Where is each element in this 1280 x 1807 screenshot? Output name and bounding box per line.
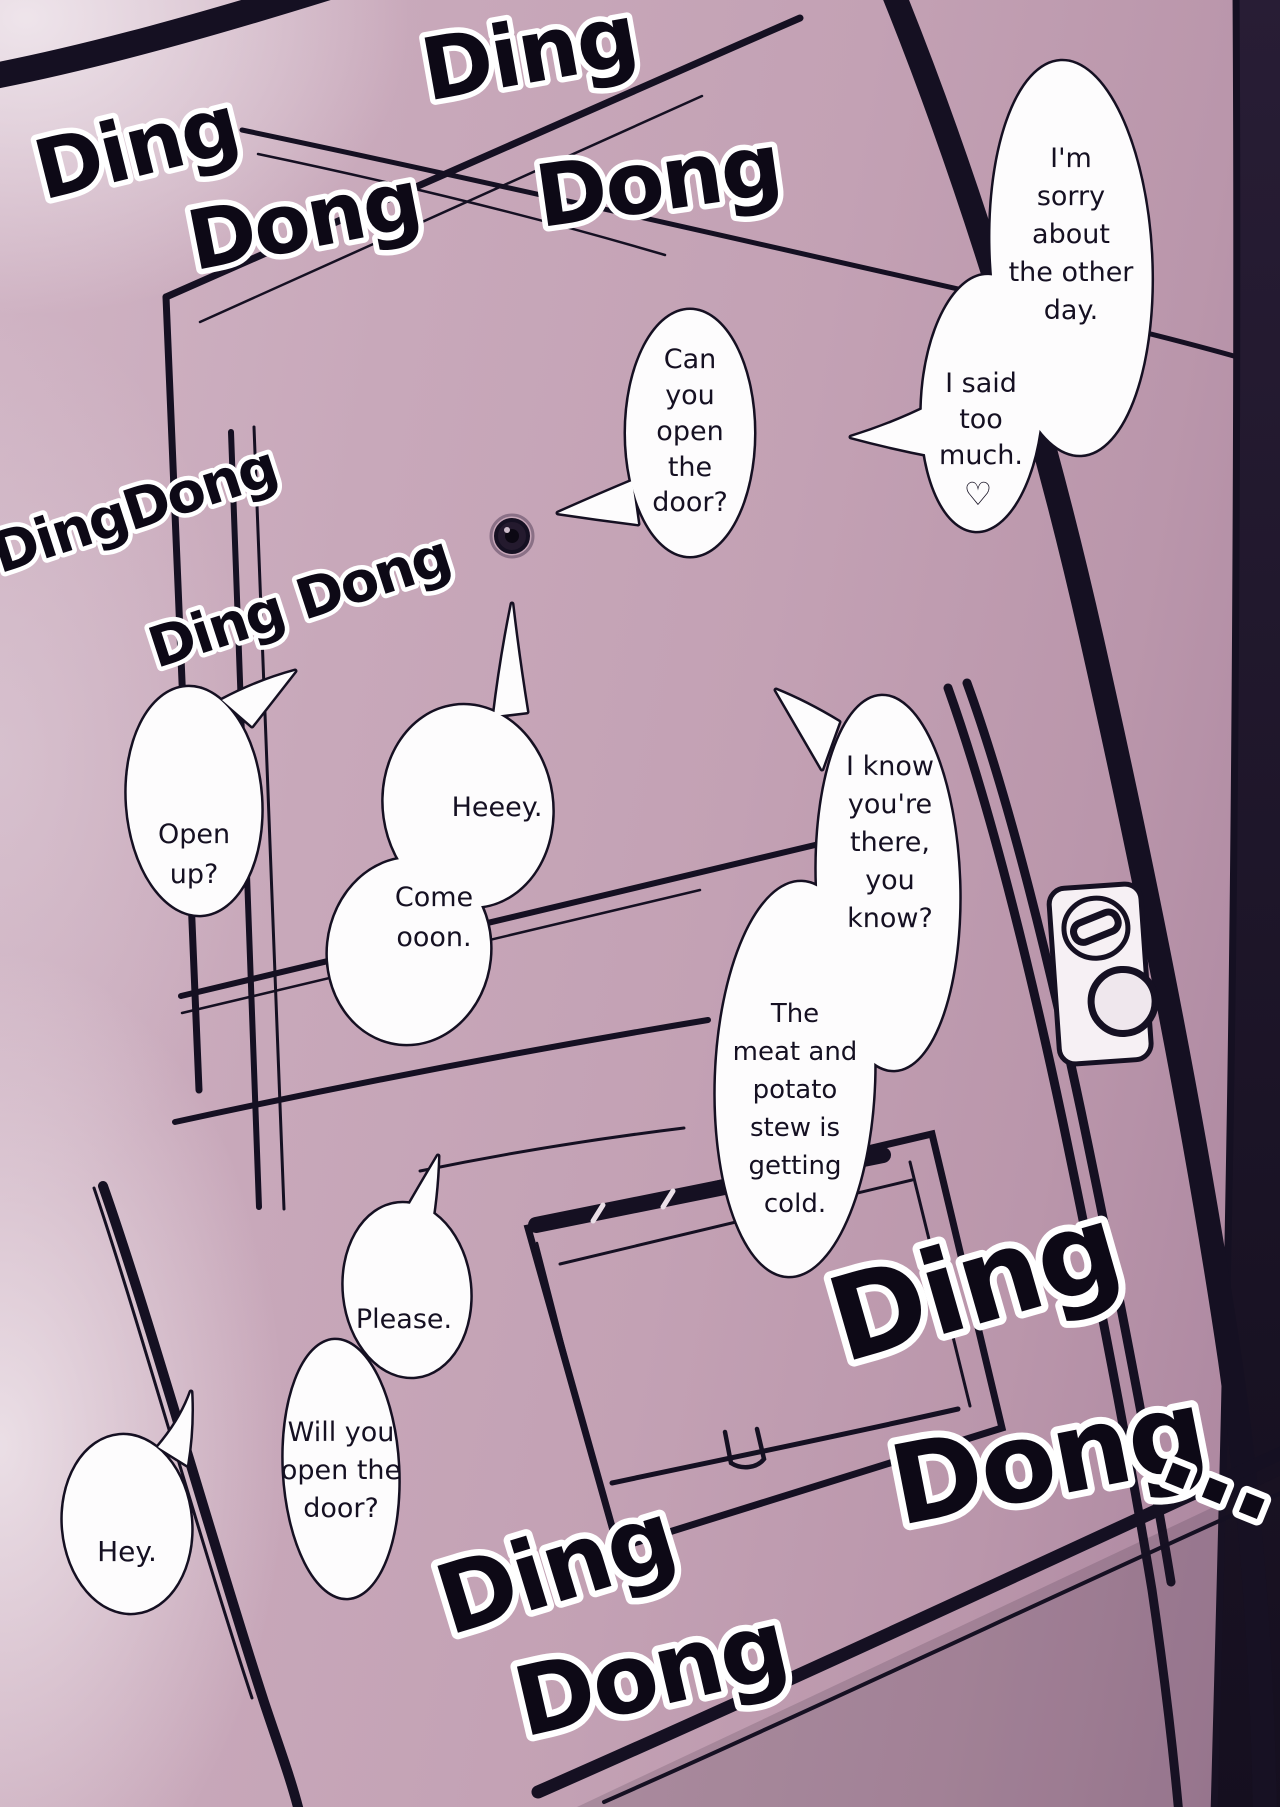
- doorknob: [1089, 967, 1157, 1035]
- bubble-will-you-line: door?: [303, 1493, 379, 1524]
- bubble-stew-line: cold.: [764, 1189, 826, 1219]
- bubble-stew-line: getting: [748, 1151, 841, 1181]
- bubble-open-up-line: Open: [158, 819, 230, 850]
- bubble-chain-hey: Hey.: [55, 1392, 198, 1618]
- bubble-stew-line: potato: [753, 1075, 838, 1105]
- bubble-stew-line: The: [770, 999, 819, 1029]
- bubble-stew-line: meat and: [733, 1037, 858, 1067]
- door-frame-top-left-band: [0, 0, 332, 78]
- bubble-chain-heeey: Heeey. Come ooon.: [319, 604, 566, 1052]
- bubble-chain-i-know: I know you're there, you know? The meat …: [709, 690, 965, 1279]
- bubble-i-know-line: I know: [846, 751, 934, 782]
- bubble-come-ooon-line: Come: [395, 882, 473, 913]
- sfx-ding-dong: Ding Dong: [141, 523, 458, 681]
- bubble-open-up-line: up?: [170, 859, 219, 890]
- bubble-i-know-line: you're: [848, 789, 932, 820]
- bubble-chain-please: Please. Will you open the door?: [277, 1156, 478, 1601]
- bubble-said-too-much-line: much.: [939, 440, 1023, 471]
- bubble-sorry-line: day.: [1044, 295, 1098, 326]
- bubble-will-you-line: open the: [281, 1455, 401, 1486]
- bubble-i-know-line: there,: [850, 827, 930, 858]
- manga-page: I'm sorry about the other day. I said to…: [0, 0, 1280, 1807]
- bubble-hey-line: Hey.: [97, 1535, 157, 1568]
- peephole-highlight: [504, 527, 510, 533]
- bubble-sorry-line: I'm: [1050, 143, 1092, 174]
- bubble-chain-sorry: I'm sorry about the other day. I said to…: [851, 57, 1161, 534]
- bubble-can-you-open-line: the: [668, 452, 712, 483]
- bubble-can-you-open-line: Can: [664, 344, 717, 375]
- sfx-dingdong: DingDong: [0, 434, 284, 587]
- heart-icon: ♡: [964, 475, 993, 513]
- sfx-dong: Dong: [530, 115, 787, 248]
- bubble-said-too-much-line: too: [959, 404, 1003, 435]
- bubble-i-know-line: know?: [847, 903, 933, 934]
- bubble-will-you-line: Will you: [288, 1417, 395, 1448]
- bubble-come-ooon-line: ooon.: [396, 922, 471, 953]
- bubble-chain-can-you-open: Can you open the door?: [558, 310, 754, 556]
- mail-flap-handle: [725, 1429, 764, 1467]
- bubble-stew-line: stew is: [750, 1113, 840, 1143]
- bubble-can-you-open-line: door?: [652, 487, 728, 518]
- bubble-i-know-line: you: [865, 865, 915, 896]
- bubble-sorry-line: the other: [1009, 257, 1135, 288]
- bubble-sorry-line: about: [1032, 219, 1110, 250]
- door-mid-rail-bottom-inner: [420, 1128, 684, 1171]
- bubble-heeey-line: Heeey.: [452, 792, 543, 823]
- bubble-sorry-line: sorry: [1037, 181, 1105, 212]
- bubble-can-you-open-line: open: [656, 416, 723, 447]
- comic-artwork: I'm sorry about the other day. I said to…: [0, 0, 1280, 1807]
- bubble-said-too-much-line: I said: [945, 368, 1017, 399]
- deadbolt-assembly: [1048, 883, 1159, 1065]
- sfx-ding: Ding: [814, 1179, 1134, 1390]
- bubble-can-you-open-line: you: [665, 380, 715, 411]
- mail-slot-panel-inner-left: [537, 1243, 612, 1535]
- bubble-please-line: Please.: [356, 1304, 452, 1335]
